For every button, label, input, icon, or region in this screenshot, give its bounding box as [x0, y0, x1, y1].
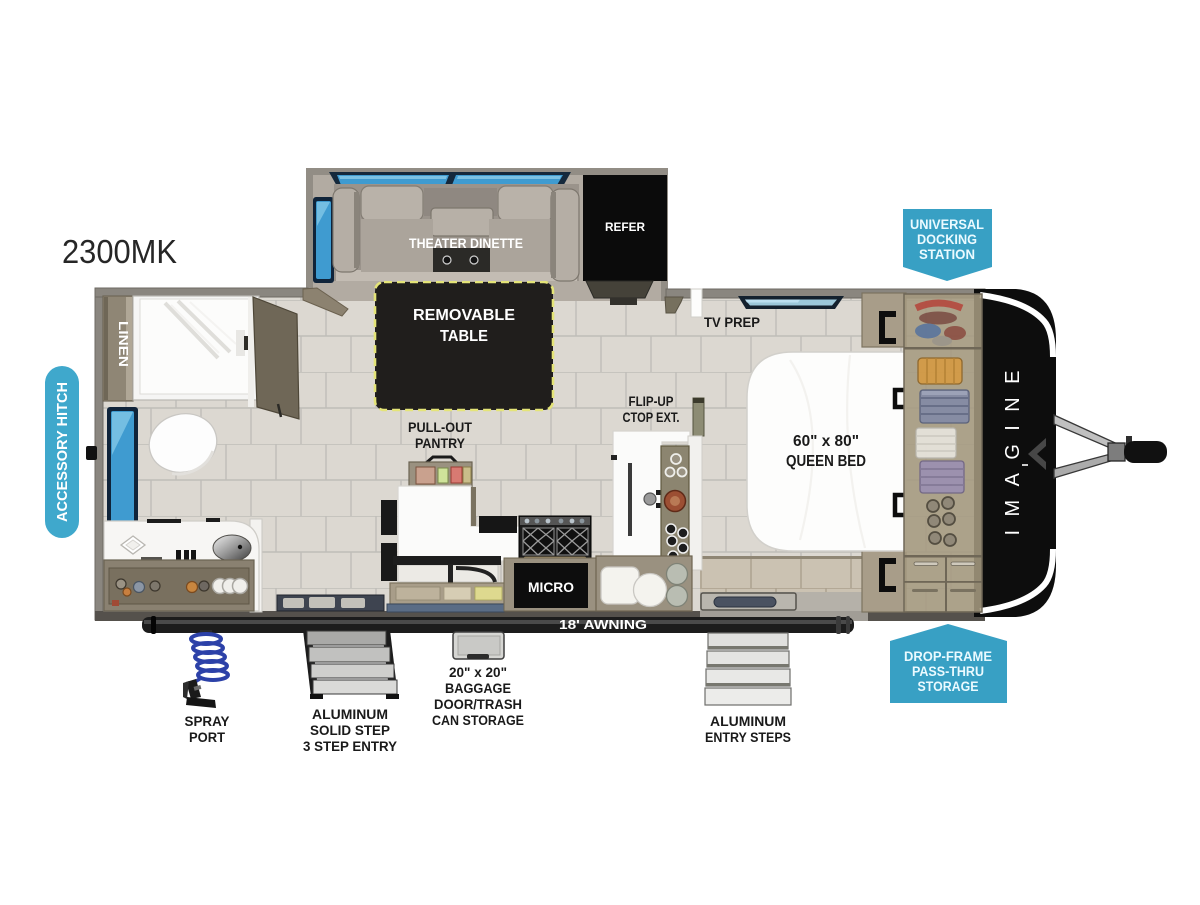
svg-text:UNIVERSAL: UNIVERSAL	[910, 217, 984, 232]
svg-text:LINEN: LINEN	[116, 321, 131, 367]
svg-text:STATION: STATION	[919, 247, 975, 262]
svg-text:TV PREP: TV PREP	[704, 315, 760, 330]
svg-text:CTOP EXT.: CTOP EXT.	[623, 410, 680, 425]
svg-text:REMOVABLE: REMOVABLE	[413, 307, 515, 324]
svg-text:SOLID STEP: SOLID STEP	[310, 723, 390, 738]
svg-text:STORAGE: STORAGE	[918, 679, 979, 694]
svg-text:MICRO: MICRO	[528, 579, 574, 595]
svg-text:PANTRY: PANTRY	[415, 436, 465, 451]
svg-text:PULL-OUT: PULL-OUT	[408, 420, 473, 435]
svg-text:18' AWNING: 18' AWNING	[559, 617, 647, 632]
svg-text:DOCKING: DOCKING	[917, 232, 977, 247]
svg-text:DOOR/TRASH: DOOR/TRASH	[434, 697, 522, 712]
svg-text:ALUMINUM: ALUMINUM	[710, 714, 786, 729]
svg-text:PORT: PORT	[189, 730, 226, 745]
svg-text:DROP-FRAME: DROP-FRAME	[904, 649, 992, 664]
svg-text:FLIP-UP: FLIP-UP	[629, 394, 674, 409]
svg-text:ACCESSORY HITCH: ACCESSORY HITCH	[55, 382, 71, 522]
svg-text:BAGGAGE: BAGGAGE	[445, 681, 511, 696]
svg-text:CAN STORAGE: CAN STORAGE	[432, 713, 524, 728]
svg-text:TABLE: TABLE	[440, 328, 488, 345]
svg-text:3 STEP ENTRY: 3 STEP ENTRY	[303, 739, 397, 754]
svg-text:2300MK: 2300MK	[62, 233, 177, 270]
svg-text:REFER: REFER	[605, 220, 645, 234]
svg-text:QUEEN BED: QUEEN BED	[786, 453, 866, 470]
svg-text:PASS-THRU: PASS-THRU	[912, 664, 984, 679]
svg-text:20" x 20": 20" x 20"	[449, 665, 507, 680]
svg-text:60" x 80": 60" x 80"	[793, 433, 859, 450]
svg-text:THEATER DINETTE: THEATER DINETTE	[409, 236, 523, 251]
svg-text:SPRAY: SPRAY	[185, 714, 230, 729]
svg-text:ALUMINUM: ALUMINUM	[312, 707, 388, 722]
svg-text:ENTRY STEPS: ENTRY STEPS	[705, 730, 791, 745]
